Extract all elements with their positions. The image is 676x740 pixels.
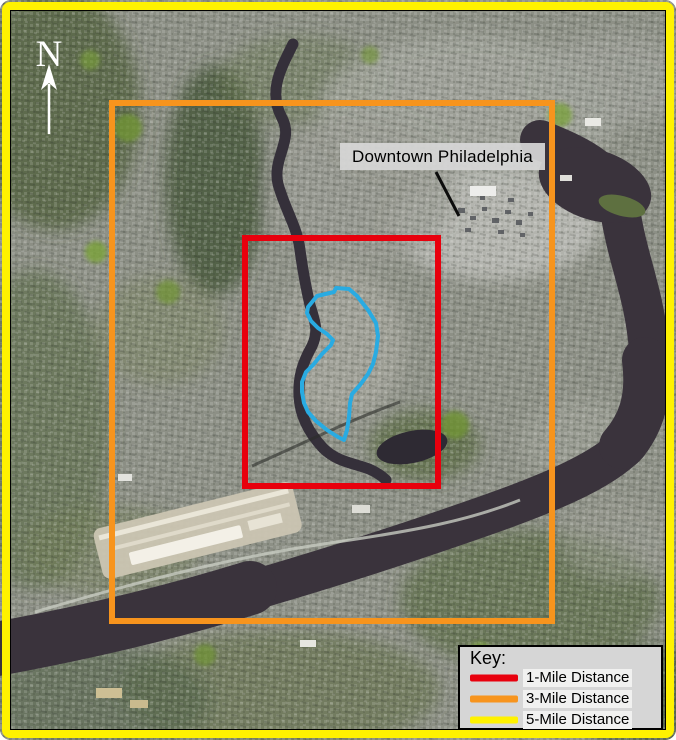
downtown-leader-line <box>436 172 459 216</box>
one-mile-line-swatch <box>470 674 518 682</box>
legend-item-3-mile: 3-Mile Distance <box>470 688 657 709</box>
north-arrow: N <box>36 34 63 134</box>
three-mile-distance-box <box>112 103 552 621</box>
legend-rows: 1-Mile Distance 3-Mile Distance 5-Mile D… <box>470 667 657 730</box>
map-overlays: N <box>0 0 676 740</box>
legend-item-label: 3-Mile Distance <box>523 690 632 708</box>
site-boundary-outline <box>302 288 378 440</box>
downtown-label: Downtown Philadelphia <box>340 143 545 170</box>
legend-title: Key: <box>470 648 506 669</box>
map-figure: N Downtown Philadelphia Key: 1-Mile Dist… <box>0 0 676 740</box>
one-mile-distance-box <box>245 238 438 486</box>
five-mile-line-swatch <box>470 716 518 724</box>
legend-item-5-mile: 5-Mile Distance <box>470 709 657 730</box>
legend-item-label: 5-Mile Distance <box>523 711 632 729</box>
legend-item-label: 1-Mile Distance <box>523 669 632 687</box>
legend: Key: 1-Mile Distance 3-Mile Distance 5-M… <box>458 645 663 730</box>
legend-item-1-mile: 1-Mile Distance <box>470 667 657 688</box>
three-mile-line-swatch <box>470 695 518 703</box>
